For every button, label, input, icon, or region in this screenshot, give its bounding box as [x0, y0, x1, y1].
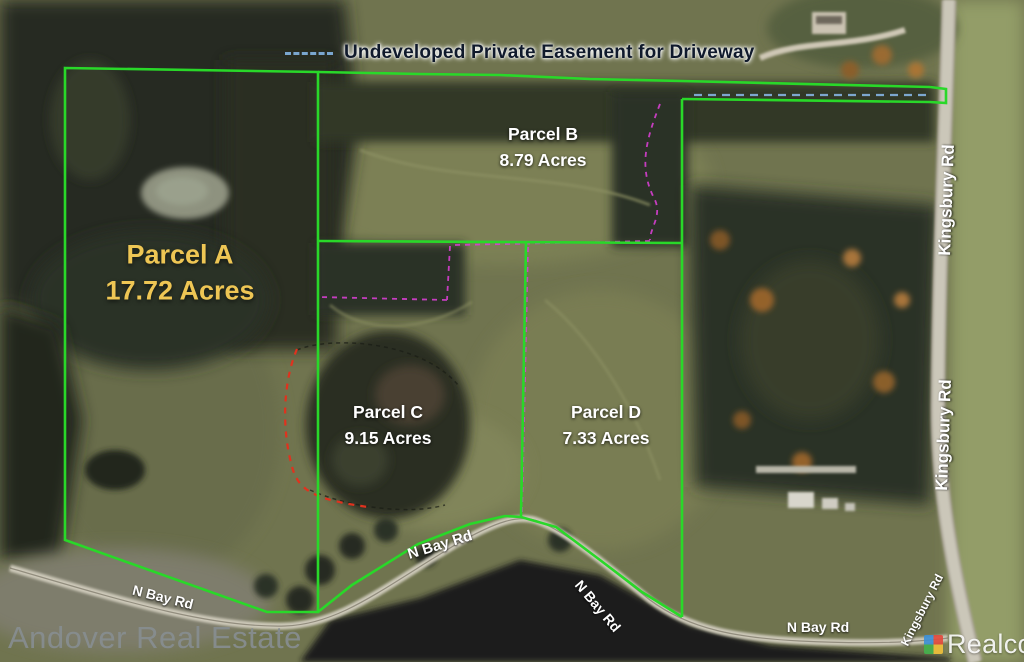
parcel-d-name: Parcel D	[563, 399, 650, 425]
parcel-d-label: Parcel D 7.33 Acres	[563, 399, 650, 452]
aerial-parcel-map: Undeveloped Private Easement for Drivewa…	[0, 0, 1024, 662]
parcel-a-name: Parcel A	[105, 237, 254, 273]
terrain	[0, 0, 1024, 662]
parcel-a-acres: 17.72 Acres	[105, 273, 254, 309]
satellite-photo	[0, 0, 1024, 662]
parcel-b-label: Parcel B 8.79 Acres	[500, 121, 587, 174]
easement-legend: Undeveloped Private Easement for Drivewa…	[285, 42, 755, 64]
parcel-a-label: Parcel A 17.72 Acres	[105, 237, 254, 310]
realcomp-logo-icon	[924, 635, 943, 654]
realcomp-brand-text: Realcomp	[947, 629, 1024, 660]
parcel-c-label: Parcel C 9.15 Acres	[345, 399, 432, 452]
parcel-c-name: Parcel C	[345, 399, 432, 425]
easement-legend-label: Undeveloped Private Easement for Drivewa…	[344, 42, 755, 64]
parcel-b-acres: 8.79 Acres	[500, 147, 587, 173]
andover-watermark: Andover Real Estate	[8, 620, 302, 656]
kingsbury-rd-label-lower: Kingsbury Rd	[932, 379, 956, 491]
easement-dash-sample	[285, 52, 333, 55]
kingsbury-rd-label-upper: Kingsbury Rd	[935, 144, 959, 256]
parcel-b-name: Parcel B	[500, 121, 587, 147]
n-bay-rd-label-right: N Bay Rd	[787, 619, 849, 635]
parcel-c-acres: 9.15 Acres	[345, 425, 432, 451]
realcomp-watermark: Realcomp	[924, 629, 1024, 660]
parcel-d-acres: 7.33 Acres	[563, 425, 650, 451]
